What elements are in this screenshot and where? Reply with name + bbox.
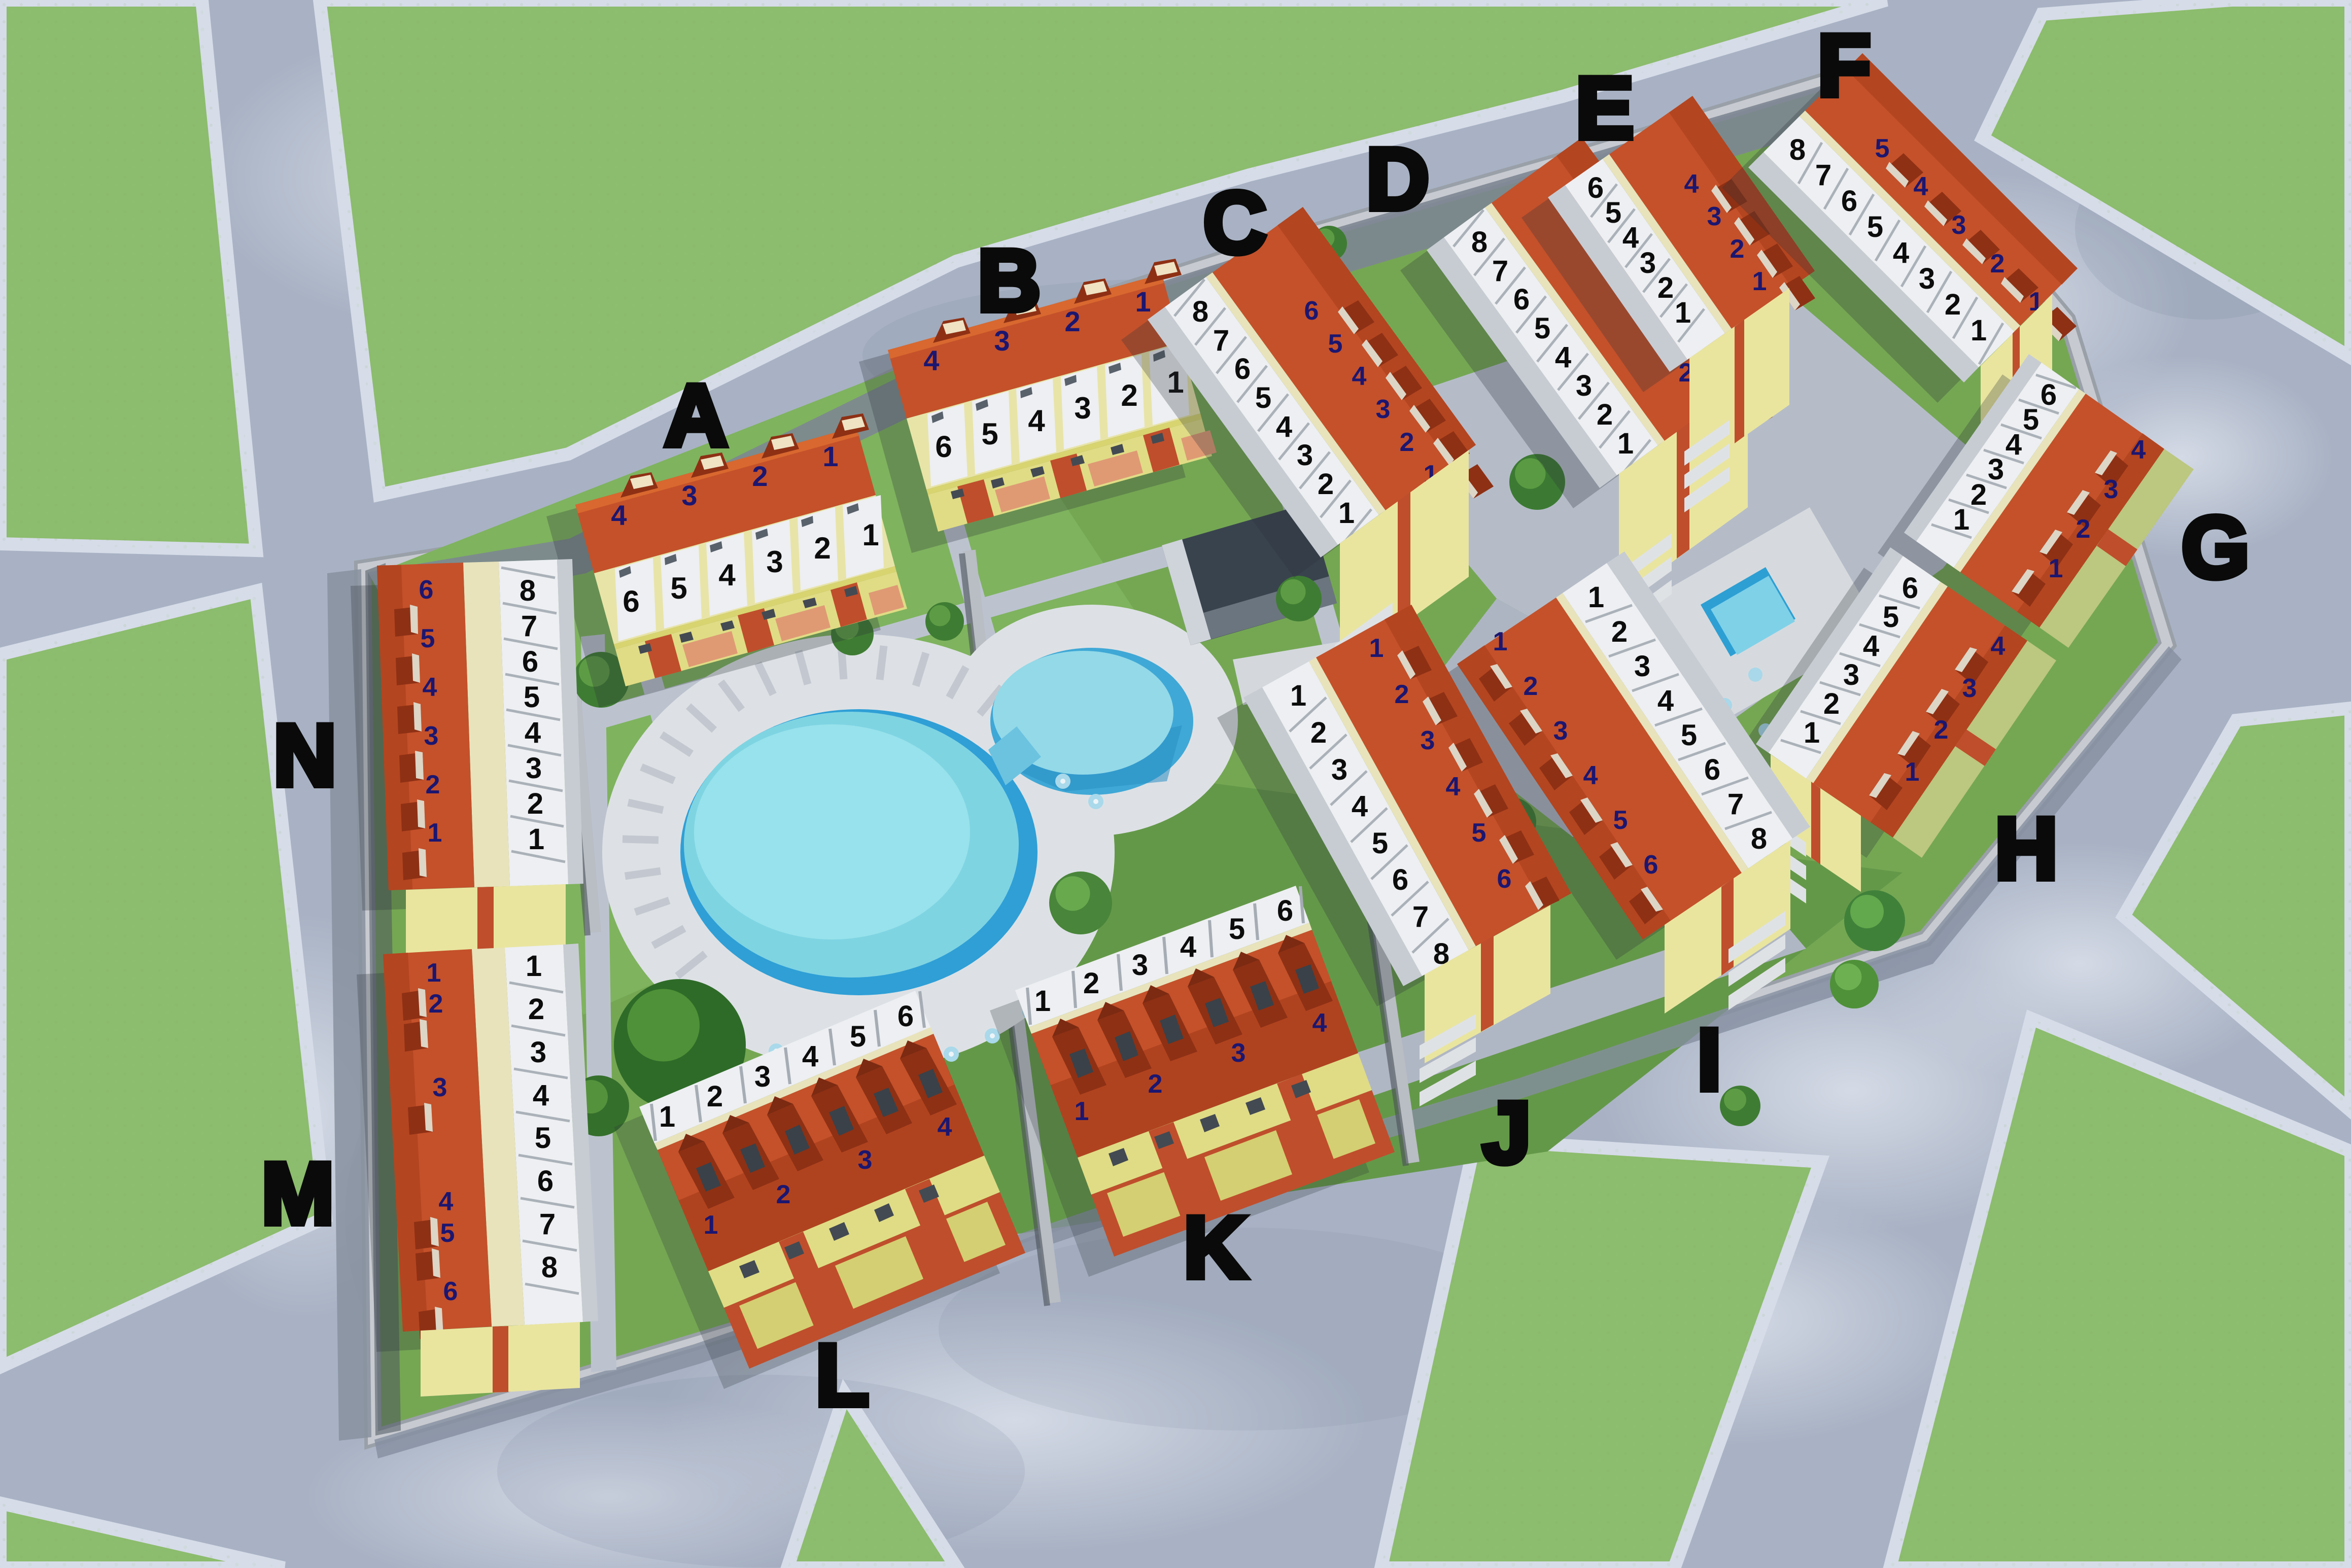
svg-text:2: 2 [752, 460, 768, 492]
svg-text:1: 1 [427, 958, 441, 988]
svg-text:K: K [1184, 1199, 1247, 1296]
svg-text:A: A [665, 367, 728, 464]
svg-text:4: 4 [1991, 632, 2006, 661]
svg-text:7: 7 [1213, 324, 1229, 357]
svg-text:H: H [1995, 800, 2058, 897]
svg-text:1: 1 [1290, 679, 1306, 712]
svg-text:5: 5 [1328, 329, 1343, 359]
svg-text:2: 2 [1823, 687, 1840, 720]
svg-text:1: 1 [2049, 554, 2063, 583]
svg-text:3: 3 [1988, 453, 2004, 486]
svg-text:4: 4 [2006, 428, 2022, 461]
svg-text:4: 4 [1583, 761, 1598, 790]
svg-text:6: 6 [1513, 283, 1530, 316]
svg-text:L: L [815, 1327, 869, 1424]
svg-text:C: C [1203, 174, 1266, 271]
svg-text:1: 1 [1752, 267, 1767, 296]
svg-text:4: 4 [1028, 404, 1045, 438]
svg-text:1: 1 [528, 823, 544, 856]
svg-text:3: 3 [1576, 369, 1592, 402]
svg-text:6: 6 [623, 584, 639, 618]
svg-text:2: 2 [528, 993, 544, 1026]
svg-text:4: 4 [1352, 362, 1367, 391]
svg-text:5: 5 [2023, 403, 2039, 436]
svg-text:2: 2 [1310, 716, 1327, 749]
svg-text:3: 3 [1553, 716, 1568, 746]
svg-text:7: 7 [521, 610, 537, 643]
svg-text:E: E [1576, 59, 1634, 157]
svg-text:3: 3 [754, 1060, 771, 1093]
svg-text:8: 8 [1751, 822, 1767, 855]
svg-text:4: 4 [1312, 1008, 1327, 1038]
svg-text:3: 3 [2104, 475, 2119, 504]
svg-text:1: 1 [1617, 427, 1634, 460]
svg-text:D: D [1366, 130, 1429, 228]
svg-text:N: N [273, 707, 336, 804]
svg-text:3: 3 [1231, 1038, 1246, 1068]
svg-text:2: 2 [1990, 249, 2005, 278]
svg-text:2: 2 [707, 1080, 723, 1113]
svg-text:3: 3 [433, 1073, 447, 1102]
svg-text:5: 5 [1534, 312, 1550, 345]
svg-text:6: 6 [1277, 894, 1293, 927]
svg-text:4: 4 [1863, 630, 1879, 663]
svg-text:3: 3 [1331, 753, 1347, 786]
svg-text:1: 1 [704, 1210, 718, 1240]
svg-text:2: 2 [1064, 305, 1080, 337]
svg-text:2: 2 [814, 531, 831, 565]
svg-text:6: 6 [1704, 753, 1720, 786]
svg-text:3: 3 [526, 752, 542, 785]
svg-text:1: 1 [1905, 757, 1920, 787]
svg-text:3: 3 [1843, 658, 1859, 691]
svg-text:4: 4 [923, 344, 939, 376]
svg-text:7: 7 [539, 1208, 556, 1241]
svg-text:4: 4 [1684, 169, 1699, 199]
svg-text:1: 1 [862, 518, 879, 552]
svg-text:2: 2 [1318, 468, 1334, 501]
svg-text:6: 6 [2041, 378, 2057, 411]
svg-text:4: 4 [1276, 410, 1292, 443]
svg-text:4: 4 [1352, 790, 1368, 823]
svg-text:3: 3 [858, 1145, 873, 1175]
svg-text:6: 6 [1304, 296, 1319, 326]
svg-text:6: 6 [419, 575, 434, 605]
svg-text:2: 2 [527, 787, 543, 820]
svg-text:5: 5 [524, 681, 540, 714]
svg-text:6: 6 [1841, 185, 1857, 218]
svg-text:1: 1 [1034, 985, 1051, 1018]
svg-text:2: 2 [1657, 271, 1674, 304]
svg-text:3: 3 [1132, 949, 1148, 982]
svg-text:1: 1 [659, 1100, 675, 1133]
svg-text:1: 1 [1588, 581, 1604, 614]
svg-text:5: 5 [535, 1122, 551, 1155]
svg-text:4: 4 [1893, 236, 1909, 269]
svg-text:1: 1 [1493, 627, 1508, 656]
svg-text:2: 2 [1400, 428, 1414, 457]
svg-text:5: 5 [1372, 827, 1388, 860]
svg-text:5: 5 [440, 1218, 455, 1248]
svg-text:1: 1 [1970, 314, 1987, 347]
svg-text:2: 2 [1611, 615, 1628, 648]
svg-text:1: 1 [1135, 286, 1151, 318]
svg-text:3: 3 [1640, 247, 1656, 280]
svg-text:5: 5 [1883, 601, 1899, 634]
svg-text:5: 5 [670, 571, 687, 605]
svg-text:4: 4 [1622, 221, 1639, 254]
svg-text:G: G [2182, 499, 2250, 596]
svg-text:5: 5 [1875, 134, 1890, 163]
svg-text:5: 5 [1605, 196, 1621, 229]
svg-text:3: 3 [1952, 211, 1966, 240]
svg-text:2: 2 [1524, 672, 1538, 701]
svg-text:6: 6 [537, 1165, 554, 1198]
svg-text:7: 7 [1492, 255, 1508, 288]
svg-text:7: 7 [1815, 159, 1831, 192]
svg-text:1: 1 [1804, 716, 1820, 749]
svg-text:1: 1 [1369, 634, 1384, 663]
svg-text:6: 6 [1644, 850, 1658, 880]
svg-text:4: 4 [423, 673, 437, 702]
svg-text:4: 4 [1180, 930, 1196, 963]
svg-text:4: 4 [1555, 341, 1571, 374]
svg-text:6: 6 [1587, 171, 1604, 204]
svg-text:2: 2 [1597, 398, 1613, 431]
svg-text:3: 3 [1376, 395, 1391, 424]
svg-text:2: 2 [776, 1180, 791, 1209]
svg-text:5: 5 [1613, 806, 1628, 835]
svg-text:B: B [978, 232, 1041, 329]
svg-text:8: 8 [541, 1251, 558, 1284]
svg-text:2: 2 [1945, 288, 1961, 321]
svg-text:7: 7 [1412, 900, 1429, 933]
svg-text:5: 5 [421, 624, 435, 653]
svg-text:1: 1 [1075, 1097, 1089, 1126]
svg-text:3: 3 [1297, 439, 1313, 472]
svg-text:6: 6 [1497, 864, 1512, 894]
svg-text:3: 3 [994, 325, 1010, 357]
svg-text:2: 2 [2076, 514, 2091, 544]
svg-text:2: 2 [429, 989, 443, 1019]
svg-text:4: 4 [802, 1040, 818, 1073]
svg-text:2: 2 [1970, 478, 1987, 511]
svg-text:3: 3 [530, 1036, 546, 1069]
svg-text:1: 1 [822, 440, 838, 472]
svg-text:1: 1 [526, 950, 542, 983]
svg-text:4: 4 [938, 1112, 952, 1142]
svg-text:5: 5 [1867, 211, 1883, 243]
svg-text:3: 3 [1421, 726, 1435, 755]
svg-text:8: 8 [520, 574, 536, 607]
svg-text:3: 3 [1074, 391, 1091, 425]
svg-text:6: 6 [1392, 863, 1408, 896]
svg-text:F: F [1817, 17, 1871, 114]
svg-text:4: 4 [439, 1187, 454, 1216]
svg-text:2: 2 [426, 770, 440, 799]
svg-text:1: 1 [1953, 503, 1969, 536]
svg-text:8: 8 [1471, 226, 1488, 259]
svg-text:4: 4 [1657, 684, 1674, 717]
svg-text:4: 4 [1446, 772, 1461, 802]
svg-text:8: 8 [1192, 295, 1208, 328]
svg-text:4: 4 [2131, 435, 2146, 465]
svg-text:J: J [1482, 1084, 1531, 1181]
svg-text:5: 5 [1472, 818, 1486, 848]
svg-text:7: 7 [1727, 788, 1744, 821]
svg-text:3: 3 [1707, 202, 1722, 231]
svg-text:6: 6 [443, 1277, 458, 1306]
svg-text:3: 3 [1962, 674, 1977, 703]
svg-text:3: 3 [1919, 262, 1935, 295]
svg-text:4: 4 [533, 1079, 549, 1112]
svg-text:6: 6 [1234, 353, 1251, 386]
svg-text:3: 3 [766, 545, 783, 579]
svg-text:5: 5 [1681, 719, 1697, 752]
svg-text:2: 2 [1934, 715, 1949, 745]
svg-text:2: 2 [1148, 1069, 1163, 1099]
svg-text:3: 3 [681, 479, 697, 511]
svg-text:5: 5 [1229, 913, 1245, 946]
svg-text:4: 4 [1914, 172, 1928, 201]
svg-text:6: 6 [1902, 572, 1918, 605]
svg-text:6: 6 [897, 1000, 914, 1033]
svg-text:1: 1 [1338, 497, 1355, 530]
svg-text:6: 6 [522, 645, 538, 678]
svg-text:4: 4 [718, 558, 736, 592]
svg-text:2: 2 [1121, 378, 1137, 412]
svg-text:M: M [261, 1145, 334, 1242]
svg-text:8: 8 [1789, 133, 1806, 166]
svg-text:1: 1 [1675, 296, 1691, 329]
svg-text:4: 4 [525, 716, 541, 749]
svg-text:1: 1 [428, 818, 442, 848]
svg-text:3: 3 [1634, 650, 1650, 683]
svg-text:I: I [1697, 1011, 1721, 1108]
svg-text:2: 2 [1395, 680, 1409, 709]
svg-text:2: 2 [1083, 967, 1099, 1000]
svg-text:6: 6 [935, 430, 952, 464]
svg-text:3: 3 [424, 721, 439, 751]
svg-text:5: 5 [981, 417, 998, 451]
svg-text:5: 5 [1255, 381, 1271, 414]
svg-text:4: 4 [611, 499, 627, 531]
svg-text:2: 2 [1730, 234, 1745, 264]
svg-text:5: 5 [850, 1020, 866, 1053]
